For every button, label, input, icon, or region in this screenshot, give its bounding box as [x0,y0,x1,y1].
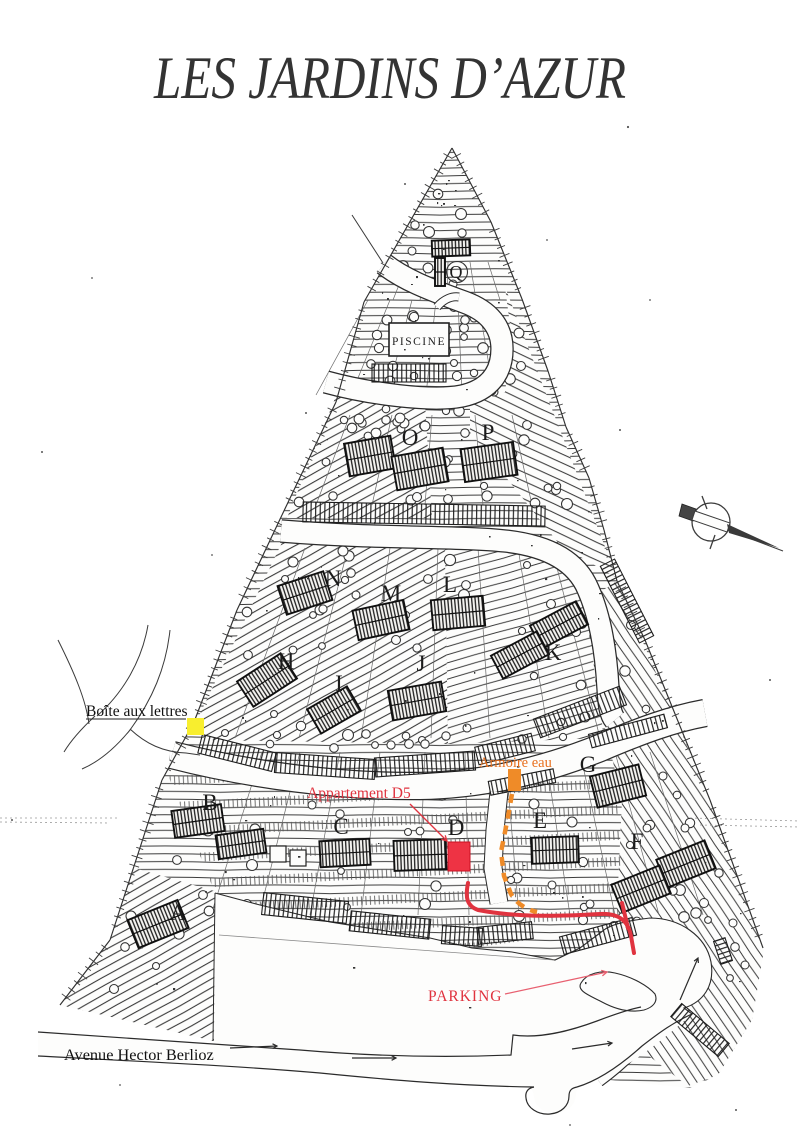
svg-text:E: E [533,808,547,833]
svg-text:M: M [381,581,401,606]
svg-text:G: G [580,752,597,777]
svg-text:N: N [325,566,342,591]
svg-text:O: O [402,425,419,450]
svg-text:C: C [333,814,348,839]
svg-text:L: L [443,572,457,597]
svg-text:PARKING: PARKING [428,988,502,1005]
svg-text:H: H [278,649,295,674]
svg-text:J: J [417,651,426,676]
svg-text:Armoire eau: Armoire eau [479,755,552,771]
svg-text:Boîte aux lettres: Boîte aux lettres [86,703,188,720]
svg-text:PISCINE: PISCINE [392,336,446,348]
svg-text:P: P [482,420,495,445]
svg-text:D: D [448,815,465,840]
svg-text:Q: Q [450,262,463,282]
svg-text:B: B [202,790,217,815]
svg-text:F: F [631,829,644,854]
svg-text:Avenue Hector Berlioz: Avenue Hector Berlioz [64,1045,214,1064]
svg-text:Appartement D5: Appartement D5 [307,785,411,802]
svg-text:I: I [335,671,343,696]
svg-text:A: A [170,900,187,925]
svg-text:LES JARDINS D’AZUR: LES JARDINS D’AZUR [153,45,626,111]
svg-text:K: K [545,640,562,665]
